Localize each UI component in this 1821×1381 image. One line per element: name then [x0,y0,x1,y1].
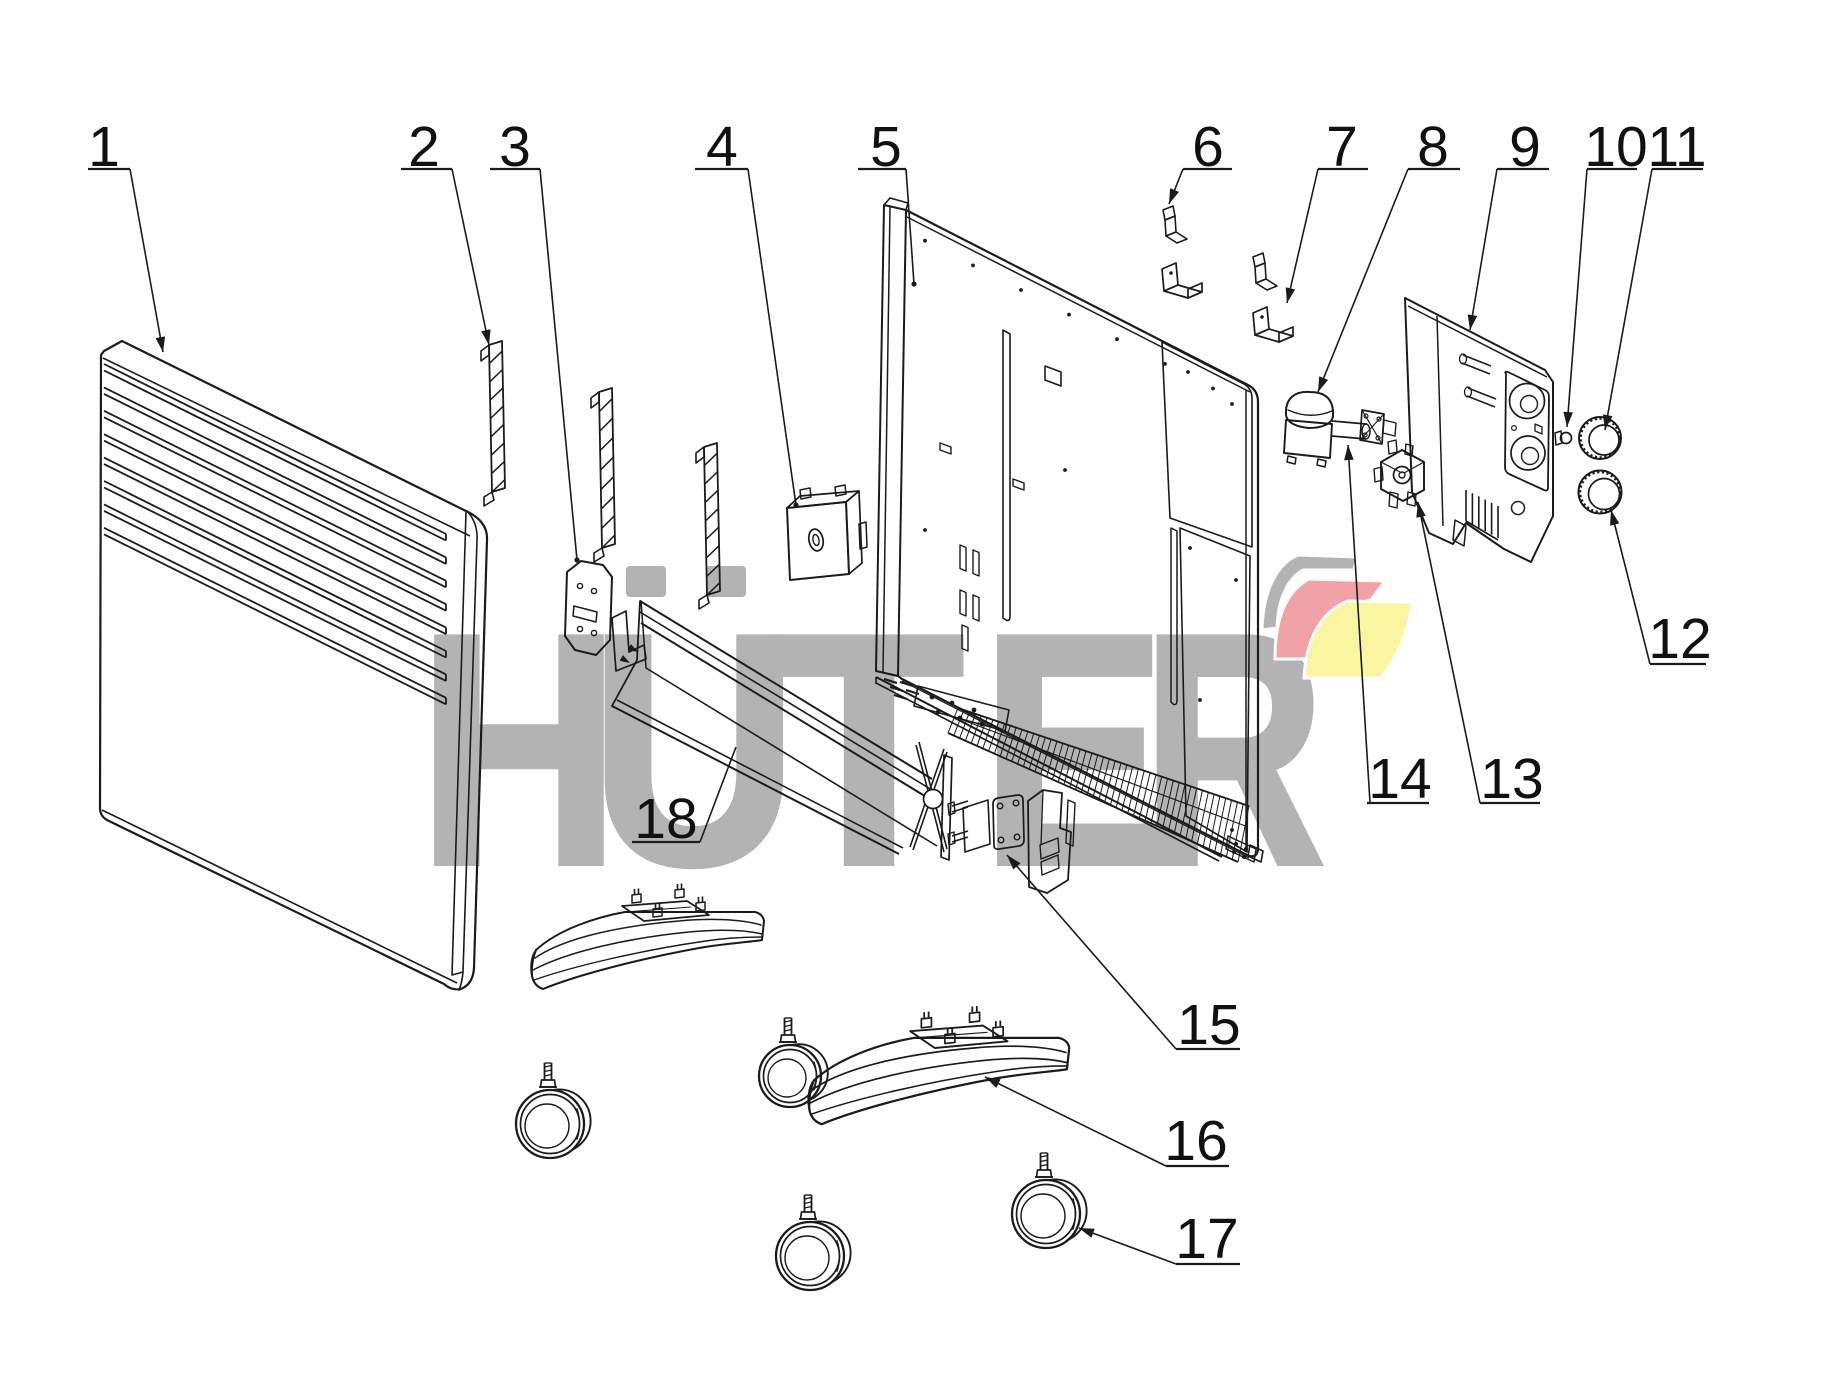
svg-text:U: U [590,566,798,933]
svg-text:13: 13 [1480,747,1543,811]
svg-text:12: 12 [1648,607,1711,671]
svg-text:T: T [774,566,964,933]
svg-text:16: 16 [1164,1109,1227,1173]
svg-text:15: 15 [1177,993,1240,1057]
svg-text:17: 17 [1175,1207,1238,1271]
svg-text:14: 14 [1368,747,1431,811]
